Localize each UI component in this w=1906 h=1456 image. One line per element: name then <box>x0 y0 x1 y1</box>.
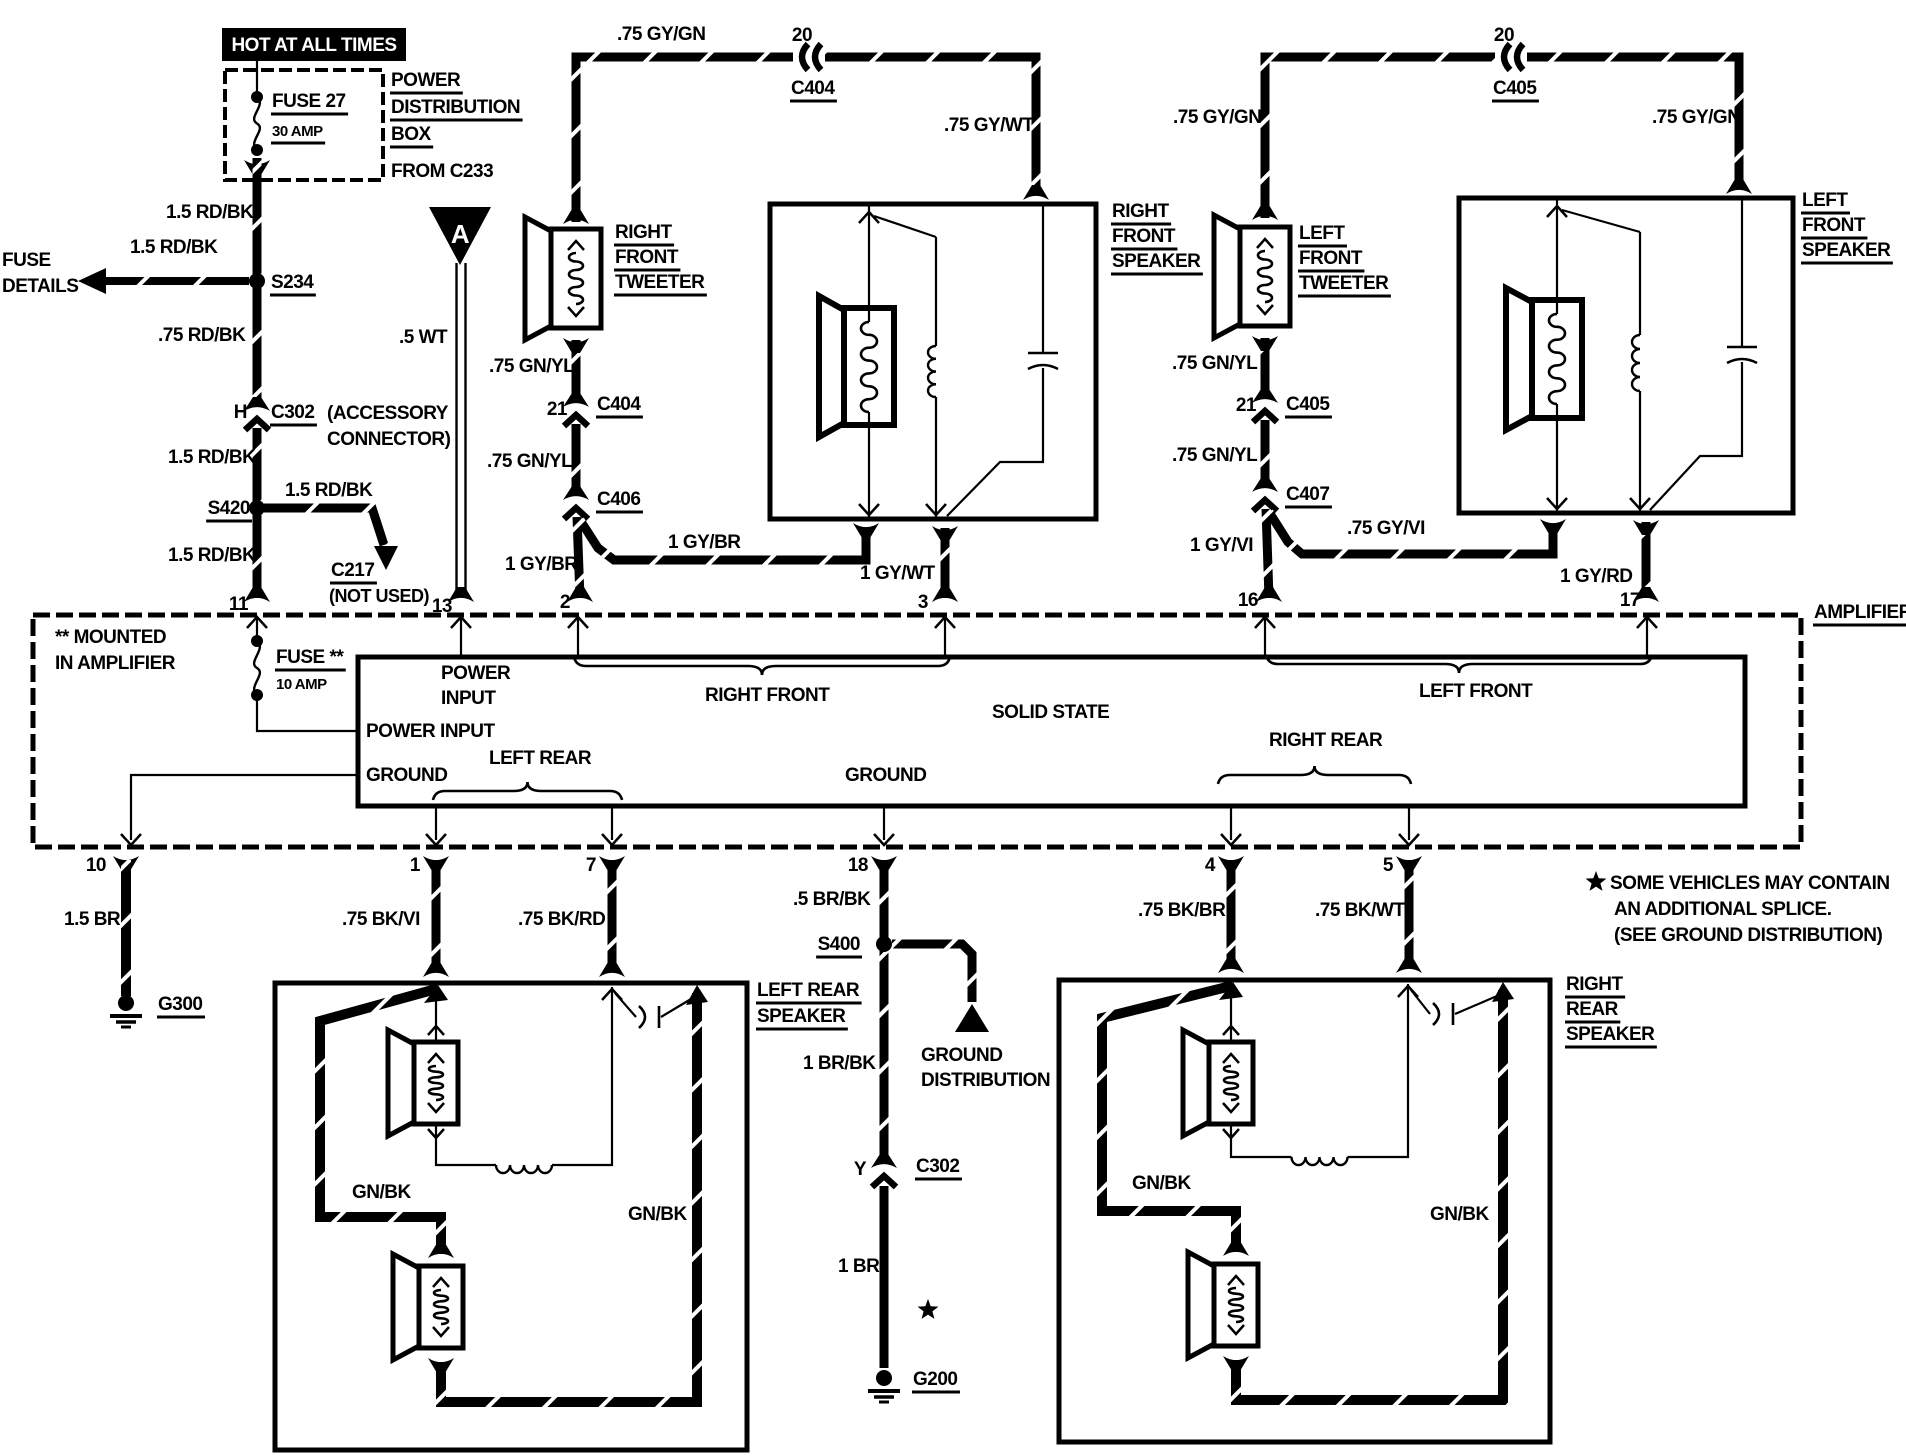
svg-text:16: 16 <box>1238 590 1258 611</box>
svg-text:.75 GN/YL: .75 GN/YL <box>487 451 573 472</box>
svg-text:FRONT: FRONT <box>1112 226 1176 247</box>
svg-text:.75 GY/VI: .75 GY/VI <box>1347 518 1425 539</box>
svg-text:20: 20 <box>1494 25 1514 46</box>
svg-text:.75 GN/YL: .75 GN/YL <box>489 356 575 377</box>
svg-text:RIGHT REAR: RIGHT REAR <box>1269 730 1383 751</box>
svg-text:.75 GY/GN: .75 GY/GN <box>1173 107 1261 128</box>
svg-text:10: 10 <box>86 855 106 876</box>
svg-text:30 AMP: 30 AMP <box>272 123 323 140</box>
svg-text:DETAILS: DETAILS <box>2 276 78 297</box>
svg-text:1.5 RD/BK: 1.5 RD/BK <box>168 447 256 468</box>
svg-text:1 BR/BK: 1 BR/BK <box>803 1053 876 1074</box>
svg-text:S400: S400 <box>818 934 860 955</box>
svg-text:SPEAKER: SPEAKER <box>1802 240 1891 261</box>
svg-text:AN ADDITIONAL SPLICE.: AN ADDITIONAL SPLICE. <box>1614 899 1832 920</box>
svg-text:.75 GN/YL: .75 GN/YL <box>1172 445 1258 466</box>
svg-text:C404: C404 <box>597 394 641 415</box>
svg-text:C302: C302 <box>916 1156 959 1177</box>
svg-text:GROUND: GROUND <box>845 765 926 786</box>
svg-text:FRONT: FRONT <box>1299 248 1363 269</box>
svg-text:G200: G200 <box>913 1369 957 1390</box>
svg-text:(ACCESSORY: (ACCESSORY <box>327 403 449 424</box>
svg-text:SOME VEHICLES MAY CONTAIN: SOME VEHICLES MAY CONTAIN <box>1610 873 1890 894</box>
svg-text:DISTRIBUTION: DISTRIBUTION <box>391 97 520 118</box>
svg-text:G300: G300 <box>158 994 202 1015</box>
svg-text:H: H <box>234 402 247 423</box>
svg-text:.75 BK/RD: .75 BK/RD <box>518 909 605 930</box>
svg-text:18: 18 <box>848 855 868 876</box>
svg-text:1.5 RD/BK: 1.5 RD/BK <box>285 480 373 501</box>
svg-text:11: 11 <box>229 594 249 615</box>
svg-text:POWER: POWER <box>441 663 511 684</box>
svg-text:.75 BK/VI: .75 BK/VI <box>342 909 420 930</box>
svg-text:FUSE **: FUSE ** <box>276 647 344 668</box>
svg-text:1: 1 <box>410 855 421 876</box>
svg-text:.5 WT: .5 WT <box>399 327 448 348</box>
svg-text:A: A <box>451 219 470 249</box>
svg-text:FUSE: FUSE <box>2 250 51 271</box>
svg-text:GN/BK: GN/BK <box>628 1204 688 1225</box>
svg-text:GN/BK: GN/BK <box>352 1182 412 1203</box>
svg-text:CONNECTOR): CONNECTOR) <box>327 429 451 450</box>
svg-text:FRONT: FRONT <box>1802 215 1866 236</box>
svg-text:LEFT: LEFT <box>1802 190 1848 211</box>
svg-text:1 BR: 1 BR <box>838 1256 880 1277</box>
svg-text:C405: C405 <box>1493 78 1537 99</box>
svg-text:INPUT: INPUT <box>441 688 496 709</box>
svg-text:TWEETER: TWEETER <box>1299 273 1389 294</box>
svg-text:1.5 BR: 1.5 BR <box>64 909 121 930</box>
svg-text:S234: S234 <box>271 272 314 293</box>
svg-text:C407: C407 <box>1286 484 1329 505</box>
svg-text:1 GY/WT: 1 GY/WT <box>860 563 936 584</box>
svg-text:1.5 RD/BK: 1.5 RD/BK <box>130 237 218 258</box>
svg-text:GROUND: GROUND <box>366 765 447 786</box>
svg-text:RIGHT: RIGHT <box>1566 974 1624 995</box>
svg-text:LEFT: LEFT <box>1299 223 1345 244</box>
svg-text:.75 GN/YL: .75 GN/YL <box>1172 353 1258 374</box>
svg-text:1 GY/BR: 1 GY/BR <box>668 532 741 553</box>
svg-text:LEFT FRONT: LEFT FRONT <box>1419 681 1533 702</box>
svg-text:SPEAKER: SPEAKER <box>1566 1024 1655 1045</box>
svg-text:1 GY/VI: 1 GY/VI <box>1190 535 1253 556</box>
svg-text:4: 4 <box>1205 855 1216 876</box>
svg-text:TWEETER: TWEETER <box>615 272 705 293</box>
svg-text:C217: C217 <box>331 560 374 581</box>
svg-text:GROUND: GROUND <box>921 1045 1002 1066</box>
svg-text:.75 BK/BR: .75 BK/BR <box>1138 900 1226 921</box>
svg-text:RIGHT: RIGHT <box>1112 201 1170 222</box>
svg-text:2: 2 <box>560 592 570 613</box>
svg-text:FUSE 27: FUSE 27 <box>272 91 346 112</box>
svg-text:IN AMPLIFIER: IN AMPLIFIER <box>55 653 176 674</box>
svg-text:C406: C406 <box>597 489 640 510</box>
svg-text:POWER INPUT: POWER INPUT <box>366 721 495 742</box>
svg-text:20: 20 <box>792 25 812 46</box>
svg-text:HOT AT ALL TIMES: HOT AT ALL TIMES <box>231 35 396 56</box>
svg-text:1.5 RD/BK: 1.5 RD/BK <box>168 545 256 566</box>
svg-text:DISTRIBUTION: DISTRIBUTION <box>921 1070 1050 1091</box>
svg-text:.75 GY/GN: .75 GY/GN <box>617 24 705 45</box>
svg-text:** MOUNTED: ** MOUNTED <box>55 627 166 648</box>
svg-text:.75 GY/GN: .75 GY/GN <box>1652 107 1740 128</box>
svg-text:POWER: POWER <box>391 70 461 91</box>
svg-text:SPEAKER: SPEAKER <box>757 1006 846 1027</box>
svg-text:1 GY/RD: 1 GY/RD <box>1560 566 1633 587</box>
svg-text:BOX: BOX <box>391 124 432 145</box>
svg-text:FROM C233: FROM C233 <box>391 161 493 182</box>
svg-text:RIGHT FRONT: RIGHT FRONT <box>705 685 830 706</box>
svg-text:RIGHT: RIGHT <box>615 222 673 243</box>
svg-text:C404: C404 <box>791 78 835 99</box>
svg-text:3: 3 <box>918 592 928 613</box>
svg-text:1 GY/BR: 1 GY/BR <box>505 554 578 575</box>
svg-text:C302: C302 <box>271 402 314 423</box>
svg-text:7: 7 <box>586 855 596 876</box>
svg-text:21: 21 <box>547 399 568 420</box>
svg-text:LEFT REAR: LEFT REAR <box>757 980 860 1001</box>
svg-text:S420: S420 <box>208 498 250 519</box>
svg-text:SPEAKER: SPEAKER <box>1112 251 1201 272</box>
svg-text:(NOT USED): (NOT USED) <box>329 586 430 606</box>
svg-text:.75 BK/WT: .75 BK/WT <box>1315 900 1405 921</box>
svg-text:GN/BK: GN/BK <box>1430 1204 1490 1225</box>
svg-text:C405: C405 <box>1286 394 1330 415</box>
svg-text:.75 RD/BK: .75 RD/BK <box>158 325 246 346</box>
svg-text:SOLID STATE: SOLID STATE <box>992 702 1109 723</box>
svg-text:GN/BK: GN/BK <box>1132 1173 1192 1194</box>
svg-text:REAR: REAR <box>1566 999 1619 1020</box>
svg-text:1.5 RD/BK: 1.5 RD/BK <box>166 202 254 223</box>
svg-text:10 AMP: 10 AMP <box>276 676 327 693</box>
svg-text:AMPLIFIER: AMPLIFIER <box>1814 602 1906 623</box>
svg-text:17: 17 <box>1620 590 1640 611</box>
svg-text:(SEE GROUND DISTRIBUTION): (SEE GROUND DISTRIBUTION) <box>1614 925 1882 946</box>
svg-text:5: 5 <box>1383 855 1394 876</box>
svg-text:21: 21 <box>1236 395 1257 416</box>
svg-text:LEFT REAR: LEFT REAR <box>489 748 592 769</box>
svg-text:FRONT: FRONT <box>615 247 679 268</box>
svg-text:.5 BR/BK: .5 BR/BK <box>793 889 871 910</box>
svg-text:Y: Y <box>854 1159 867 1180</box>
svg-text:.75 GY/WT: .75 GY/WT <box>944 115 1034 136</box>
